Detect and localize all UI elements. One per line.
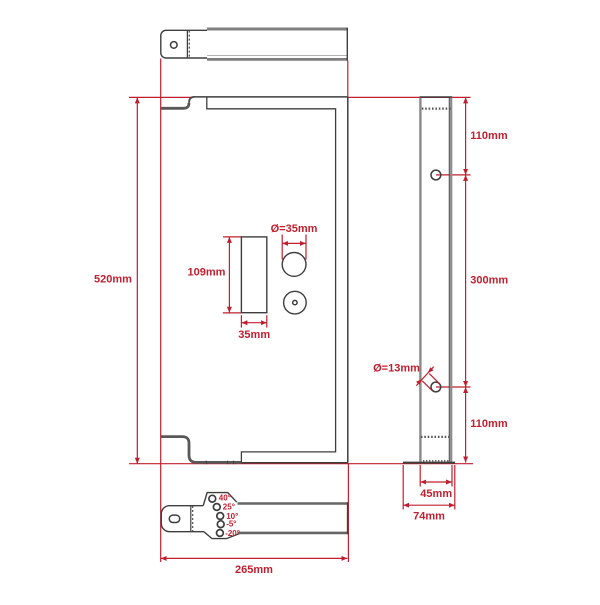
svg-text:300mm: 300mm: [470, 275, 508, 287]
svg-text:74mm: 74mm: [413, 511, 445, 523]
svg-text:110mm: 110mm: [470, 418, 508, 430]
svg-text:40°: 40°: [219, 494, 231, 503]
svg-text:-20°: -20°: [225, 529, 240, 538]
svg-text:Ø=13mm: Ø=13mm: [373, 363, 420, 375]
svg-text:-5°: -5°: [226, 520, 236, 529]
svg-text:110mm: 110mm: [470, 130, 508, 142]
svg-text:265mm: 265mm: [235, 564, 273, 576]
svg-text:25°: 25°: [223, 502, 235, 511]
svg-text:45mm: 45mm: [420, 488, 452, 500]
svg-text:109mm: 109mm: [188, 267, 226, 279]
svg-text:35mm: 35mm: [238, 329, 270, 341]
svg-text:Ø=35mm: Ø=35mm: [271, 223, 318, 235]
svg-text:520mm: 520mm: [94, 274, 132, 286]
